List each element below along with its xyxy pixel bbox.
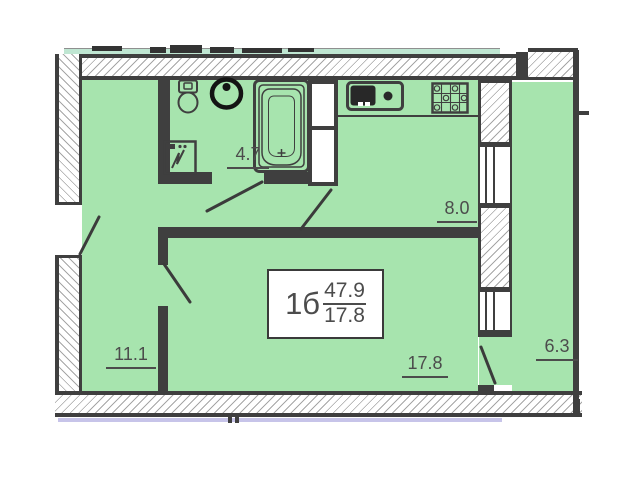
living-room-window [478,290,512,332]
living-area-value: 17.8 [324,305,365,328]
room-area-label-hallway: 11.1 [106,345,156,369]
wall-tick-right [579,111,589,115]
apartment-type-label: 1б [285,286,320,322]
area-value: 4.7 [235,145,260,165]
floor-plan: 4.7 8.0 11.1 17.8 6.3 1б 47.9 17.8 [0,0,640,480]
cut-mark [150,47,166,53]
wall-balcony-right [573,50,579,417]
wall-bottom [55,391,582,417]
kitchen-sink-icon [346,81,404,111]
wall-bottom-right-notch [574,399,580,417]
room-area-label-balcony: 6.3 [536,337,578,361]
strip-tick [228,417,232,423]
label-underline [437,221,477,223]
area-value: 11.1 [114,345,148,365]
label-underline [536,359,578,361]
cut-mark [242,48,282,53]
cut-mark [288,48,314,52]
bathroom-sink-icon [209,77,244,110]
cut-mark [92,46,122,51]
wall-hall-living-upper [158,227,168,265]
window-pane-line [493,292,495,330]
cut-mark [210,47,234,53]
cut-mark [170,45,202,53]
vent-shaft-divider [312,126,334,130]
label-underline [227,167,269,169]
pier-middle [478,205,512,290]
area-value: 8.0 [444,199,469,219]
strip-tick [235,417,239,423]
stove-icon [431,82,469,114]
lower-floor-strip [58,418,502,422]
kitchen-window [478,145,512,205]
area-value: 6.3 [544,337,569,357]
room-area-label-living-room: 17.8 [402,354,448,378]
wall-top [55,54,530,80]
balcony-door-jamb-top [478,330,512,337]
vent-shaft [308,80,338,186]
window-pane-line [485,147,487,203]
area-value: 17.8 [407,354,442,374]
wall-living-top [158,227,480,238]
area-fraction: 47.9 17.8 [323,280,366,327]
label-underline [402,376,448,378]
pier-top [478,80,512,145]
window-pane-line [485,292,487,330]
wall-top-step [528,48,578,80]
window-pane-line [493,147,495,203]
wall-hall-living-lower [158,306,168,391]
wall-top-joint [516,52,528,80]
wall-left-upper [55,54,82,205]
room-area-label-bathroom: 4.7 [227,145,269,169]
label-underline [106,367,156,369]
washing-machine-icon [163,140,197,175]
wall-bathroom-bottom-right [264,172,310,184]
floor-balcony-door-gap [479,337,512,385]
toilet-icon [175,79,201,114]
apartment-info-box: 1б 47.9 17.8 [267,269,384,339]
balcony-door-jamb-bottom [478,385,494,393]
total-area-value: 47.9 [323,280,366,305]
room-area-label-kitchen: 8.0 [437,199,477,223]
